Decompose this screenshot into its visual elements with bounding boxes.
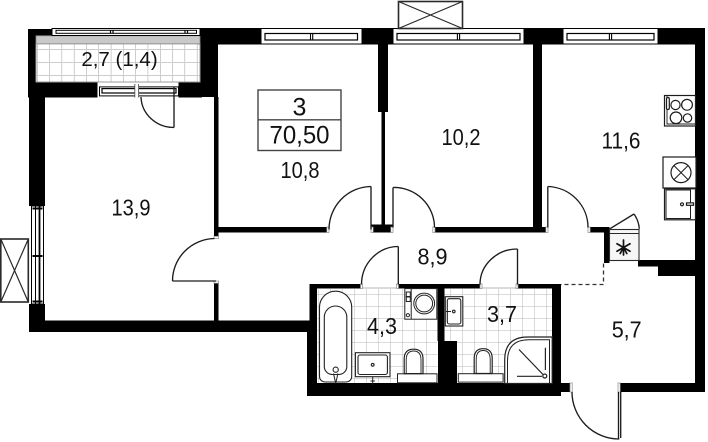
- svg-text:3,7: 3,7: [487, 301, 517, 327]
- svg-text:4,3: 4,3: [367, 313, 397, 339]
- svg-text:10,2: 10,2: [442, 124, 481, 150]
- svg-text:8,9: 8,9: [418, 244, 448, 270]
- svg-text:11,6: 11,6: [602, 128, 641, 154]
- svg-text:3: 3: [293, 93, 307, 121]
- svg-text:70,50: 70,50: [270, 122, 330, 150]
- svg-text:2,7 (1,4): 2,7 (1,4): [81, 48, 157, 71]
- svg-text:10,8: 10,8: [281, 157, 320, 183]
- svg-text:13,9: 13,9: [112, 195, 151, 221]
- svg-text:5,7: 5,7: [612, 317, 642, 343]
